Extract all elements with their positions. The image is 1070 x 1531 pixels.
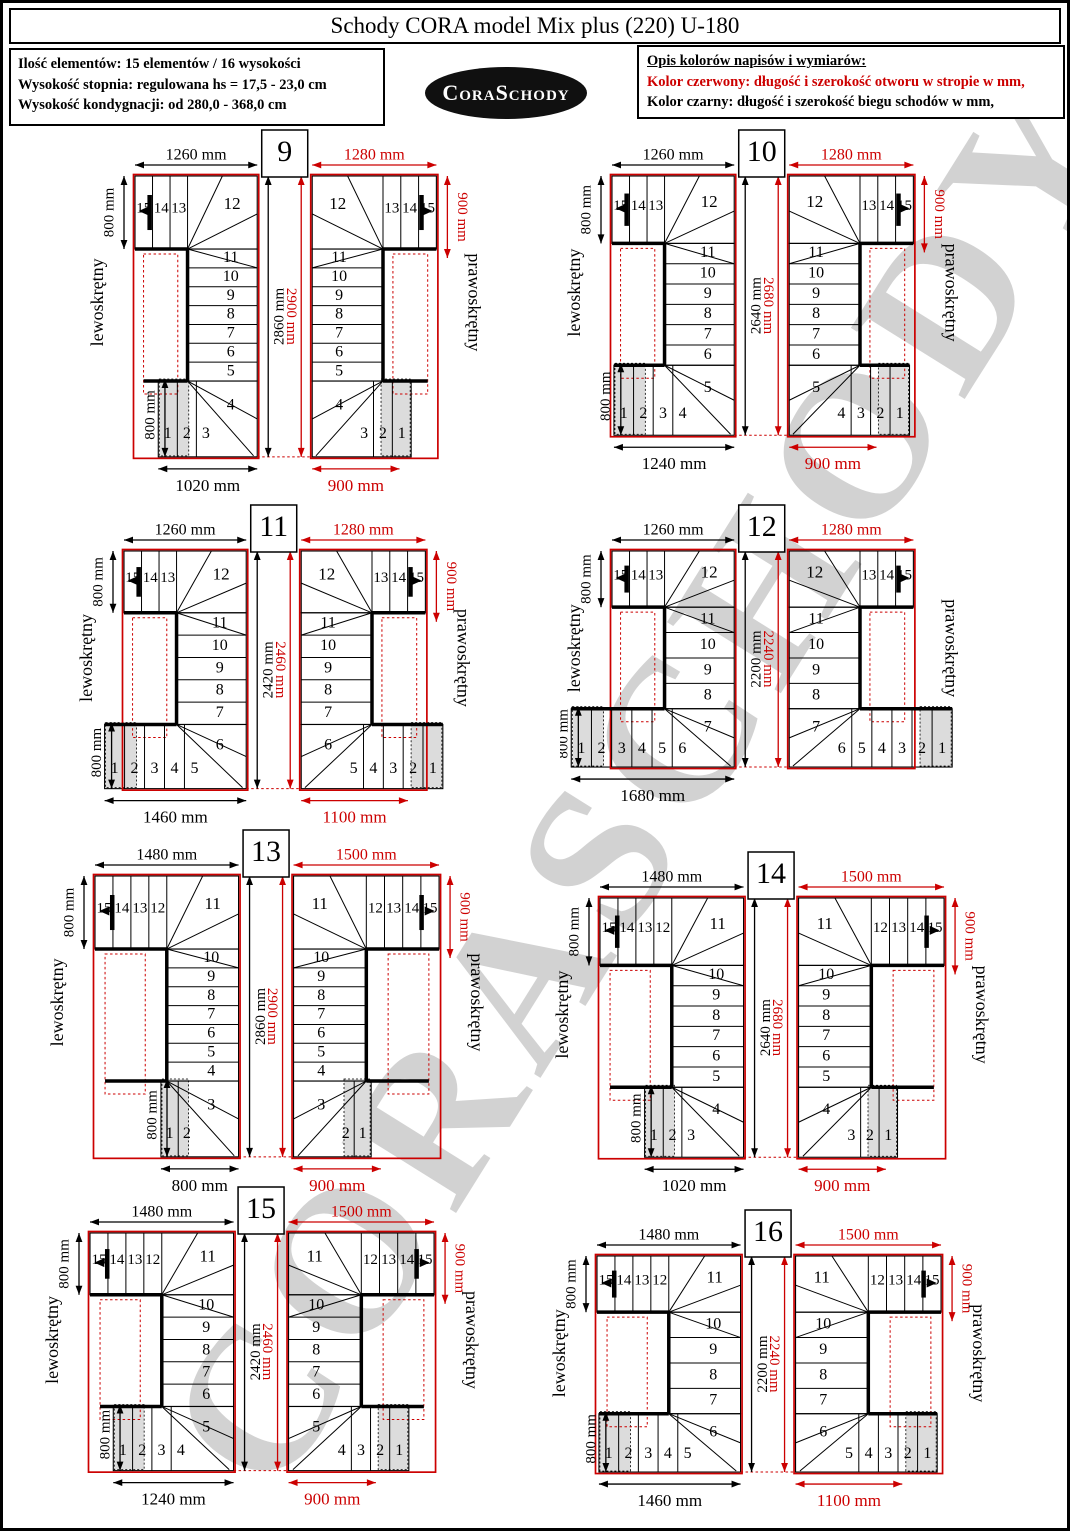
step-number: 9 bbox=[812, 285, 820, 302]
step-number: 13 bbox=[648, 568, 663, 584]
step-number: 11 bbox=[205, 894, 221, 913]
step-number: 10 bbox=[198, 1297, 214, 1314]
landing-shading bbox=[159, 379, 188, 456]
step-number: 6 bbox=[712, 1047, 720, 1064]
step-number: 7 bbox=[324, 704, 332, 721]
central-dimensions: 2420 mm2460 mm bbox=[254, 551, 294, 789]
step-number: 13 bbox=[634, 1273, 649, 1289]
step-number: 8 bbox=[822, 1007, 830, 1024]
step-number: 5 bbox=[822, 1068, 830, 1085]
step-number: 8 bbox=[709, 1366, 717, 1383]
side-top-dim-label: 800 mm bbox=[563, 1259, 579, 1309]
opening-dotted-outline bbox=[621, 248, 655, 378]
side-top-dim-label: 900 mm bbox=[454, 192, 470, 242]
step-number: 13 bbox=[386, 900, 401, 916]
step-number: 3 bbox=[898, 740, 906, 757]
step-number: 9 bbox=[704, 661, 712, 678]
step-number: 6 bbox=[678, 740, 686, 757]
step-number: 8 bbox=[216, 682, 224, 699]
step-number: 8 bbox=[335, 306, 343, 323]
step-number: 12 bbox=[870, 1273, 885, 1289]
opening-dotted-outline bbox=[100, 1300, 140, 1420]
step-number: 9 bbox=[822, 987, 830, 1004]
color-legend-box: Opis kolorów napisów i wymiarów: Kolor c… bbox=[637, 45, 1065, 119]
step-number: 8 bbox=[819, 1366, 827, 1383]
variant-label-left-turning: lewoskrętny bbox=[552, 971, 572, 1059]
info-line-step-height: Wysokość stopnia: regulowana hs = 17,5 -… bbox=[18, 75, 376, 96]
step-number: 8 bbox=[704, 687, 712, 704]
step-number: 4 bbox=[170, 760, 178, 777]
stair-plan-left-turning: 151413121110987612345 bbox=[105, 550, 248, 791]
step-number: 10 bbox=[308, 1297, 324, 1314]
bottom-width-dim-label: 1240 mm bbox=[642, 454, 707, 473]
step-number: 3 bbox=[360, 425, 368, 442]
stair-diagram-12-svg: 1514131211109871234561260 mm800 mm800 mm… bbox=[560, 504, 1030, 884]
step-number: 4 bbox=[837, 405, 845, 422]
side-top-dim-label: 900 mm bbox=[931, 189, 947, 239]
diagram-pair-13: 1514131211109876543121480 mm800 mm800 mm… bbox=[43, 829, 513, 1214]
step-number: 14 bbox=[114, 900, 130, 916]
opening-length-dim-label: 2900 mm bbox=[264, 988, 280, 1045]
step-number: 1 bbox=[923, 1445, 931, 1462]
step-number: 11 bbox=[707, 1267, 723, 1286]
top-width-dim-label: 1480 mm bbox=[136, 847, 197, 864]
step-number: 8 bbox=[312, 1341, 320, 1358]
step-number: 14 bbox=[631, 568, 647, 584]
opening-dotted-outline bbox=[893, 970, 934, 1100]
cora-schody-logo: CoraSchody bbox=[425, 67, 587, 119]
step-number: 3 bbox=[158, 1442, 166, 1459]
step-number: 14 bbox=[402, 200, 418, 216]
step-number: 5 bbox=[317, 1043, 325, 1060]
landing-shading bbox=[878, 363, 908, 434]
step-number: 10 bbox=[331, 268, 347, 285]
top-width-dim-label: 1500 mm bbox=[336, 847, 397, 864]
step-number: 3 bbox=[202, 425, 210, 442]
step-number: 9 bbox=[704, 285, 712, 302]
step-number: 6 bbox=[822, 1047, 830, 1064]
step-number: 9 bbox=[207, 968, 215, 985]
legend-red-line: Kolor czerwony: długość i szerokość otwo… bbox=[647, 72, 1055, 93]
step-number: 7 bbox=[712, 1027, 720, 1044]
step-number: 3 bbox=[357, 1442, 365, 1459]
central-dimensions: 2860 mm2900 mm bbox=[265, 176, 305, 457]
step-number: 7 bbox=[335, 325, 343, 342]
top-width-dim-label: 1280 mm bbox=[333, 522, 394, 539]
side-bottom-dim-label: 800 mm bbox=[560, 709, 572, 759]
info-line-storey-height: Wysokość kondygnacji: od 280,0 - 368,0 c… bbox=[18, 95, 376, 116]
stair-plan-right-turning: 151413121110987612345 bbox=[300, 550, 443, 791]
step-number: 14 bbox=[906, 1273, 922, 1289]
step-number: 8 bbox=[317, 987, 325, 1004]
legend-heading: Opis kolorów napisów i wymiarów: bbox=[647, 51, 1055, 72]
opening-length-dim-label: 2680 mm bbox=[760, 277, 776, 334]
stair-plan-left-turning: 151413121110987123456 bbox=[571, 550, 735, 769]
variant-label-left-turning: lewoskrętny bbox=[87, 258, 107, 346]
step-number: 9 bbox=[712, 987, 720, 1004]
step-number: 3 bbox=[847, 1127, 855, 1144]
step-number: 11 bbox=[223, 249, 238, 266]
top-width-dim-label: 1500 mm bbox=[841, 869, 902, 886]
opening-dotted-outline bbox=[133, 618, 167, 738]
legend-red-label: Kolor czerwony: bbox=[647, 74, 750, 90]
step-number: 3 bbox=[884, 1445, 892, 1462]
opening-dotted-outline bbox=[388, 954, 429, 1094]
step-number: 14 bbox=[109, 1252, 125, 1268]
central-dimensions: 2200 mm2240 mm bbox=[742, 551, 782, 767]
step-number: 14 bbox=[909, 920, 925, 936]
step-number: 11 bbox=[710, 914, 726, 933]
step-number: 10 bbox=[808, 636, 824, 653]
stair-plan-right-turning: 151413121110987651234 bbox=[287, 1232, 436, 1473]
side-bottom-dim-label: 800 mm bbox=[97, 1409, 113, 1459]
step-number: 3 bbox=[317, 1097, 325, 1114]
step-number: 1 bbox=[896, 405, 904, 422]
step-number: 13 bbox=[648, 198, 663, 214]
step-number: 7 bbox=[704, 325, 712, 342]
central-dimensions: 2640 mm2680 mm bbox=[751, 898, 791, 1157]
step-number: 5 bbox=[858, 740, 866, 757]
stair-diagram-15-svg: 1514131211109876512341480 mm800 mm800 mm… bbox=[38, 1186, 508, 1531]
step-number: 7 bbox=[202, 1364, 210, 1381]
side-top-dim-label: 800 mm bbox=[101, 187, 117, 237]
top-width-dim-label: 1260 mm bbox=[155, 522, 216, 539]
diagram-pair-12: 1514131211109871234561260 mm800 mm800 mm… bbox=[560, 504, 1030, 889]
step-number: 13 bbox=[127, 1252, 142, 1268]
opening-dotted-outline bbox=[870, 612, 905, 722]
step-number: 7 bbox=[812, 719, 820, 736]
step-number: 7 bbox=[704, 719, 712, 736]
side-top-dim-label: 800 mm bbox=[578, 554, 594, 604]
step-number: 8 bbox=[712, 1007, 720, 1024]
step-number: 2 bbox=[138, 1442, 146, 1459]
dimensions: 1280 mm bbox=[789, 522, 913, 544]
step-number: 2 bbox=[376, 1442, 384, 1459]
step-number: 11 bbox=[808, 244, 823, 261]
step-number: 2 bbox=[342, 1125, 350, 1142]
step-number: 9 bbox=[312, 1319, 320, 1336]
side-bottom-dim-label: 800 mm bbox=[629, 1093, 645, 1143]
step-number: 8 bbox=[704, 305, 712, 322]
step-number: 4 bbox=[369, 760, 377, 777]
step-number: 12 bbox=[329, 194, 346, 213]
side-bottom-dim-label: 800 mm bbox=[583, 1414, 599, 1464]
step-number: 5 bbox=[845, 1445, 853, 1462]
opening-dotted-outline bbox=[383, 1300, 424, 1420]
top-width-dim-label: 1280 mm bbox=[821, 522, 882, 539]
top-width-dim-label: 1500 mm bbox=[331, 1204, 392, 1221]
stair-diagram-9-svg: 1514131211109876541231260 mm800 mm800 mm… bbox=[83, 129, 553, 509]
step-number: 7 bbox=[317, 1006, 325, 1023]
step-number: 12 bbox=[701, 562, 718, 581]
step-number: 7 bbox=[709, 1392, 717, 1409]
step-number: 10 bbox=[320, 637, 336, 654]
opening-dotted-outline bbox=[382, 618, 417, 738]
side-bottom-dim-label: 800 mm bbox=[142, 390, 158, 440]
opening-length-dim-label: 2240 mm bbox=[760, 630, 776, 687]
step-number: 4 bbox=[207, 1062, 215, 1079]
step-number: 10 bbox=[203, 949, 219, 966]
step-number: 14 bbox=[616, 1273, 632, 1289]
opening-dotted-outline bbox=[105, 954, 145, 1094]
step-number: 5 bbox=[227, 362, 235, 379]
step-number: 14 bbox=[391, 570, 407, 586]
step-number: 4 bbox=[338, 1442, 346, 1459]
landing-shading bbox=[106, 722, 137, 787]
top-width-dim-label: 1260 mm bbox=[166, 147, 227, 164]
variant-label-left-turning: lewoskrętny bbox=[47, 958, 67, 1046]
central-dimensions: 2420 mm2460 mm bbox=[241, 1233, 281, 1471]
stair-diagram-10-svg: 1514131211109876512341260 mm800 mm800 mm… bbox=[560, 129, 1030, 509]
diagram-pair-15: 1514131211109876512341480 mm800 mm800 mm… bbox=[38, 1186, 508, 1531]
stair-diagram-14-svg: 1514131211109876541231480 mm800 mm800 mm… bbox=[548, 851, 1018, 1231]
legend-black-text: długość i szerokość biegu schodów w mm, bbox=[733, 94, 994, 110]
variant-label-right-turning: prawoskrętny bbox=[969, 1304, 989, 1402]
bottom-width-dim-label: 900 mm bbox=[814, 1176, 870, 1195]
step-number: 12 bbox=[806, 562, 823, 581]
step-number: 9 bbox=[202, 1319, 210, 1336]
step-number: 5 bbox=[335, 362, 343, 379]
top-width-dim-label: 1480 mm bbox=[131, 1204, 192, 1221]
step-number: 3 bbox=[151, 760, 159, 777]
variant-label-left-turning: lewoskrętny bbox=[564, 249, 584, 337]
bottom-width-dim-label: 900 mm bbox=[328, 476, 384, 495]
diagram-pair-16: 1514131211109876123451480 mm800 mm800 mm… bbox=[545, 1209, 1015, 1531]
config-number: 12 bbox=[747, 510, 777, 543]
step-number: 5 bbox=[704, 379, 712, 396]
step-number: 12 bbox=[145, 1252, 160, 1268]
step-number: 11 bbox=[700, 244, 715, 261]
stair-plan-left-turning: 151413121110987612345 bbox=[596, 1255, 743, 1474]
step-number: 11 bbox=[212, 615, 227, 632]
step-number: 1 bbox=[938, 740, 946, 757]
step-number: 10 bbox=[818, 966, 834, 983]
step-number: 13 bbox=[861, 198, 876, 214]
bottom-width-dim-label: 1680 mm bbox=[620, 786, 685, 805]
step-number: 7 bbox=[819, 1392, 827, 1409]
step-number: 8 bbox=[202, 1341, 210, 1358]
step-number: 14 bbox=[879, 568, 895, 584]
step-number: 2 bbox=[866, 1127, 874, 1144]
step-number: 2 bbox=[131, 760, 139, 777]
step-number: 5 bbox=[202, 1418, 210, 1435]
step-number: 13 bbox=[373, 570, 388, 586]
stair-plan-right-turning: 151413121110987654123 bbox=[311, 175, 438, 459]
stair-plan-right-turning: 151413121110987654123 bbox=[797, 897, 946, 1159]
step-number: 11 bbox=[331, 249, 346, 266]
step-number: 6 bbox=[819, 1424, 827, 1441]
step-number: 8 bbox=[324, 682, 332, 699]
landing-shading bbox=[114, 1404, 144, 1469]
step-number: 6 bbox=[202, 1386, 210, 1403]
step-number: 6 bbox=[324, 736, 332, 753]
step-number: 12 bbox=[655, 920, 670, 936]
step-number: 13 bbox=[171, 200, 186, 216]
config-number: 14 bbox=[756, 857, 786, 890]
step-number: 12 bbox=[213, 565, 230, 584]
step-number: 3 bbox=[857, 405, 865, 422]
stair-diagram-11-svg: 1514131211109876123451260 mm800 mm800 mm… bbox=[72, 504, 542, 884]
step-number: 7 bbox=[216, 704, 224, 721]
opening-dotted-outline bbox=[144, 254, 178, 394]
bottom-width-dim-label: 900 mm bbox=[304, 1490, 360, 1509]
step-number: 6 bbox=[812, 346, 820, 363]
step-number: 2 bbox=[183, 425, 191, 442]
top-width-dim-label: 1500 mm bbox=[838, 1227, 899, 1244]
step-number: 2 bbox=[669, 1127, 677, 1144]
diagram-pair-10: 1514131211109876512341260 mm800 mm800 mm… bbox=[560, 129, 1030, 514]
step-number: 5 bbox=[712, 1068, 720, 1085]
step-number: 14 bbox=[879, 198, 895, 214]
top-width-dim-label: 1280 mm bbox=[821, 147, 882, 164]
step-number: 12 bbox=[701, 192, 718, 211]
stair-plan-right-turning: 151413121110987651234 bbox=[788, 175, 915, 437]
step-number: 13 bbox=[888, 1273, 903, 1289]
step-number: 12 bbox=[150, 900, 165, 916]
side-top-dim-label: 900 mm bbox=[962, 911, 978, 961]
variant-label-right-turning: prawoskrętny bbox=[464, 253, 484, 351]
step-number: 5 bbox=[312, 1418, 320, 1435]
step-number: 5 bbox=[207, 1043, 215, 1060]
landing-shading bbox=[381, 379, 410, 456]
side-top-dim-label: 800 mm bbox=[56, 1239, 72, 1289]
step-number: 6 bbox=[227, 343, 235, 360]
side-top-dim-label: 900 mm bbox=[452, 1244, 468, 1294]
bottom-width-dim-label: 1100 mm bbox=[817, 1491, 881, 1510]
step-number: 13 bbox=[160, 570, 175, 586]
step-number: 6 bbox=[335, 343, 343, 360]
diagram-pair-9: 1514131211109876541231260 mm800 mm800 mm… bbox=[83, 129, 553, 514]
step-number: 14 bbox=[143, 570, 159, 586]
step-number: 12 bbox=[806, 192, 823, 211]
step-number: 2 bbox=[183, 1125, 191, 1142]
diagram-pair-14: 1514131211109876541231480 mm800 mm800 mm… bbox=[548, 851, 1018, 1236]
step-number: 6 bbox=[317, 1025, 325, 1042]
central-dimensions: 2200 mm2240 mm bbox=[748, 1256, 788, 1472]
step-number: 12 bbox=[224, 194, 241, 213]
step-number: 9 bbox=[709, 1341, 717, 1358]
step-number: 12 bbox=[368, 900, 383, 916]
step-number: 10 bbox=[212, 637, 228, 654]
opening-dotted-outline bbox=[393, 254, 428, 394]
landing-shading bbox=[615, 363, 645, 434]
variant-label-left-turning: lewoskrętny bbox=[42, 1296, 62, 1384]
side-top-dim-label: 900 mm bbox=[443, 562, 459, 612]
step-number: 1 bbox=[884, 1127, 892, 1144]
step-number: 14 bbox=[631, 198, 647, 214]
step-number: 11 bbox=[200, 1247, 216, 1266]
step-number: 4 bbox=[177, 1442, 185, 1459]
top-width-dim-label: 1260 mm bbox=[643, 147, 704, 164]
landing-shading bbox=[868, 1085, 896, 1156]
step-number: 4 bbox=[335, 397, 343, 414]
step-number: 10 bbox=[708, 966, 724, 983]
step-number: 3 bbox=[659, 405, 667, 422]
step-number: 4 bbox=[865, 1445, 873, 1462]
step-number: 8 bbox=[207, 987, 215, 1004]
step-number: 1 bbox=[359, 1125, 367, 1142]
step-number: 4 bbox=[822, 1101, 830, 1118]
step-number: 7 bbox=[312, 1364, 320, 1381]
opening-length-dim-label: 2680 mm bbox=[769, 999, 785, 1056]
step-number: 3 bbox=[687, 1127, 695, 1144]
step-number: 12 bbox=[873, 920, 888, 936]
step-number: 2 bbox=[625, 1445, 633, 1462]
step-number: 9 bbox=[216, 659, 224, 676]
variant-label-left-turning: lewoskrętny bbox=[549, 1309, 569, 1397]
top-width-dim-label: 1260 mm bbox=[643, 522, 704, 539]
step-number: 4 bbox=[878, 740, 886, 757]
step-number: 8 bbox=[812, 687, 820, 704]
step-number: 12 bbox=[652, 1273, 667, 1289]
side-bottom-dim-label: 800 mm bbox=[598, 371, 614, 421]
opening-dotted-outline bbox=[870, 248, 905, 378]
stair-diagram-16-svg: 1514131211109876123451480 mm800 mm800 mm… bbox=[545, 1209, 1015, 1531]
step-number: 5 bbox=[812, 379, 820, 396]
step-number: 6 bbox=[312, 1386, 320, 1403]
step-number: 9 bbox=[324, 659, 332, 676]
step-number: 7 bbox=[207, 1006, 215, 1023]
step-number: 1 bbox=[395, 1442, 403, 1459]
step-number: 10 bbox=[700, 636, 716, 653]
step-number: 2 bbox=[639, 405, 647, 422]
step-number: 11 bbox=[320, 615, 335, 632]
stair-plan-right-turning: 151413121110987123456 bbox=[788, 550, 952, 769]
step-number: 5 bbox=[684, 1445, 692, 1462]
step-number: 1 bbox=[429, 760, 437, 777]
step-number: 2 bbox=[904, 1445, 912, 1462]
step-number: 9 bbox=[812, 661, 820, 678]
variant-label-right-turning: prawoskrętny bbox=[941, 244, 961, 342]
step-number: 14 bbox=[154, 200, 170, 216]
step-number: 9 bbox=[335, 287, 343, 304]
variant-label-right-turning: prawoskrętny bbox=[972, 966, 992, 1064]
step-number: 4 bbox=[638, 740, 646, 757]
side-top-dim-label: 800 mm bbox=[90, 557, 106, 607]
config-number: 16 bbox=[753, 1215, 783, 1248]
side-top-dim-label: 800 mm bbox=[566, 907, 582, 957]
step-number: 12 bbox=[363, 1252, 378, 1268]
step-number: 8 bbox=[227, 306, 235, 323]
step-number: 1 bbox=[398, 425, 406, 442]
variant-label-right-turning: prawoskrętny bbox=[941, 599, 961, 697]
opening-dotted-outline bbox=[610, 970, 650, 1100]
config-number: 15 bbox=[246, 1192, 276, 1225]
info-box: Ilość elementów: 15 elementów / 16 wysok… bbox=[9, 48, 385, 126]
step-number: 11 bbox=[814, 1267, 830, 1286]
step-number: 2 bbox=[918, 740, 926, 757]
bottom-width-dim-label: 1020 mm bbox=[662, 1176, 727, 1195]
step-number: 14 bbox=[404, 900, 420, 916]
config-number: 11 bbox=[259, 510, 288, 543]
step-number: 13 bbox=[384, 200, 399, 216]
step-number: 8 bbox=[812, 305, 820, 322]
stair-plan-right-turning: 151413121110987654312 bbox=[292, 875, 441, 1159]
step-number: 11 bbox=[817, 914, 833, 933]
opening-length-dim-label: 2240 mm bbox=[766, 1335, 782, 1392]
legend-black-label: Kolor czarny: bbox=[647, 94, 733, 110]
step-number: 9 bbox=[227, 287, 235, 304]
step-number: 7 bbox=[227, 325, 235, 342]
bottom-width-dim-label: 1460 mm bbox=[143, 808, 208, 827]
step-number: 10 bbox=[313, 949, 329, 966]
step-number: 13 bbox=[891, 920, 906, 936]
step-number: 10 bbox=[808, 265, 824, 282]
step-number: 6 bbox=[216, 736, 224, 753]
step-number: 14 bbox=[399, 1252, 415, 1268]
step-number: 2 bbox=[598, 740, 606, 757]
step-number: 10 bbox=[223, 268, 239, 285]
